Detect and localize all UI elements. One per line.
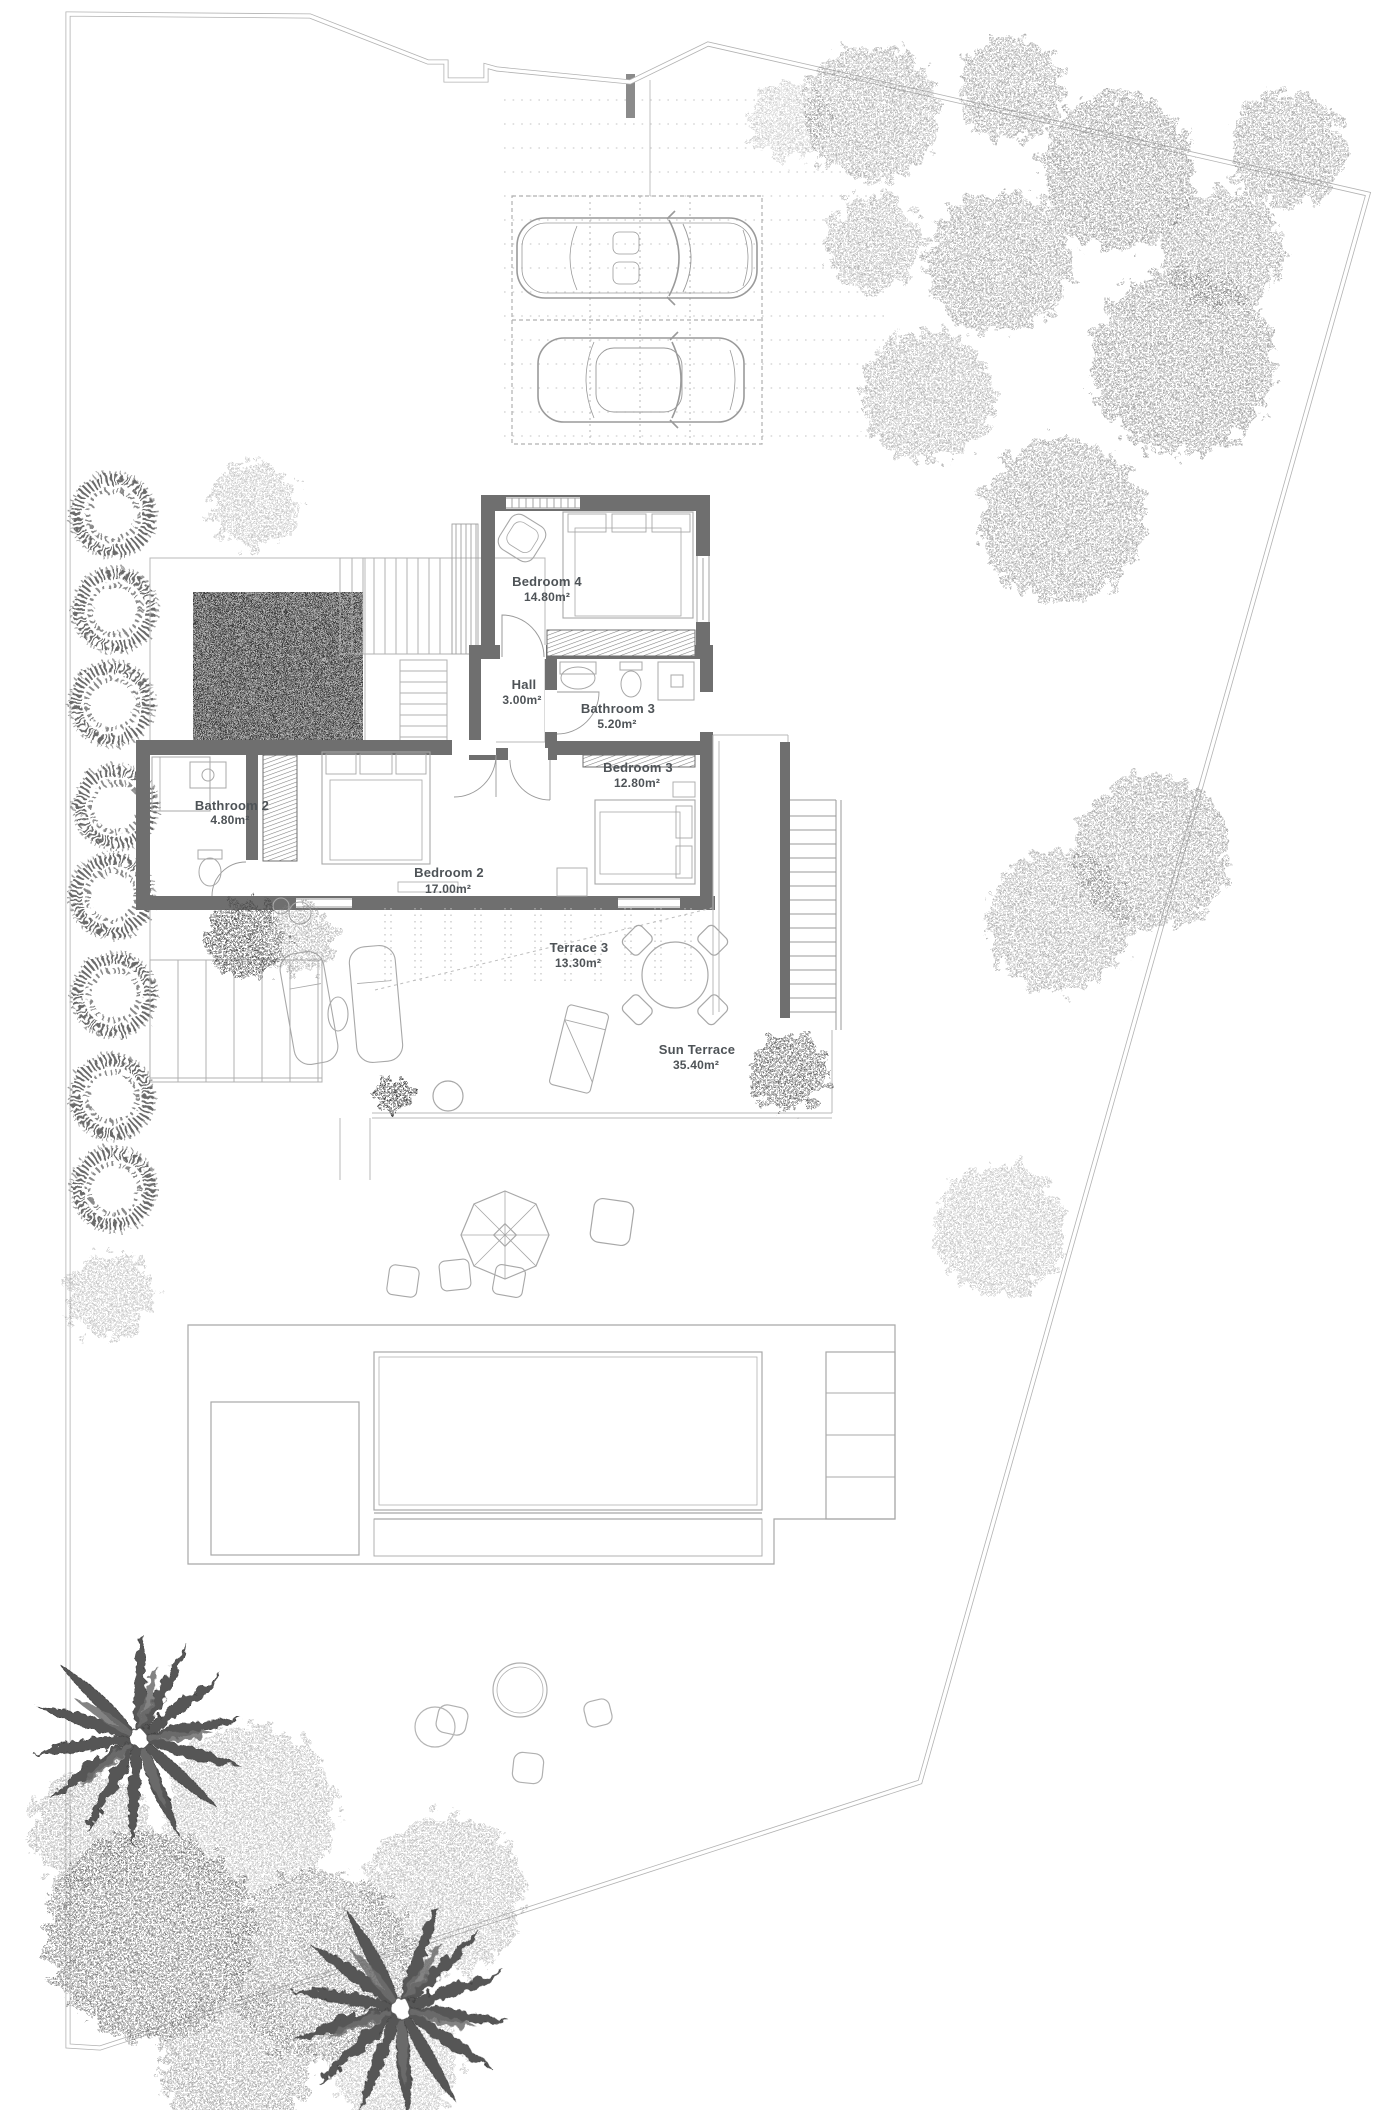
room-area-bathroom2: 4.80m² (210, 813, 249, 827)
room-label-hall: Hall (512, 677, 537, 692)
room-label-bathroom2: Bathroom 2 (195, 798, 269, 813)
shrub-terrace-edge (378, 1076, 412, 1110)
room-label-bedroom4: Bedroom 4 (512, 574, 582, 589)
room-area-hall: 3.00m² (502, 693, 541, 707)
tree-right-low (934, 1164, 1066, 1296)
label-sun-terrace: Sun Terrace (659, 1042, 735, 1057)
room-label-bedroom3: Bedroom 3 (603, 760, 673, 775)
room-area-bedroom2: 17.00m² (425, 882, 471, 896)
room-area-bathroom3: 5.20m² (597, 717, 636, 731)
tree-light-above-house (209, 461, 297, 549)
green-roof-gravel (193, 592, 363, 742)
site-plan-drawing: Bedroom 4 14.80m² Hall 3.00m² Bathroom 3… (0, 0, 1400, 2110)
label-terrace3: Terrace 3 (550, 940, 609, 955)
area-terrace3: 13.30m² (555, 956, 601, 970)
room-area-bedroom3: 12.80m² (614, 776, 660, 790)
area-sun-terrace: 35.40m² (673, 1058, 719, 1072)
floor-plan-page: Bedroom 4 14.80m² Hall 3.00m² Bathroom 3… (0, 0, 1400, 2110)
room-label-bathroom3: Bathroom 3 (581, 701, 655, 716)
shrub-light-left (66, 1251, 154, 1339)
shrub-sun-terrace (752, 1034, 828, 1110)
room-area-bedroom4: 14.80m² (524, 590, 570, 604)
room-label-bedroom2: Bedroom 2 (414, 865, 484, 880)
planter-shrub-light (268, 904, 336, 972)
